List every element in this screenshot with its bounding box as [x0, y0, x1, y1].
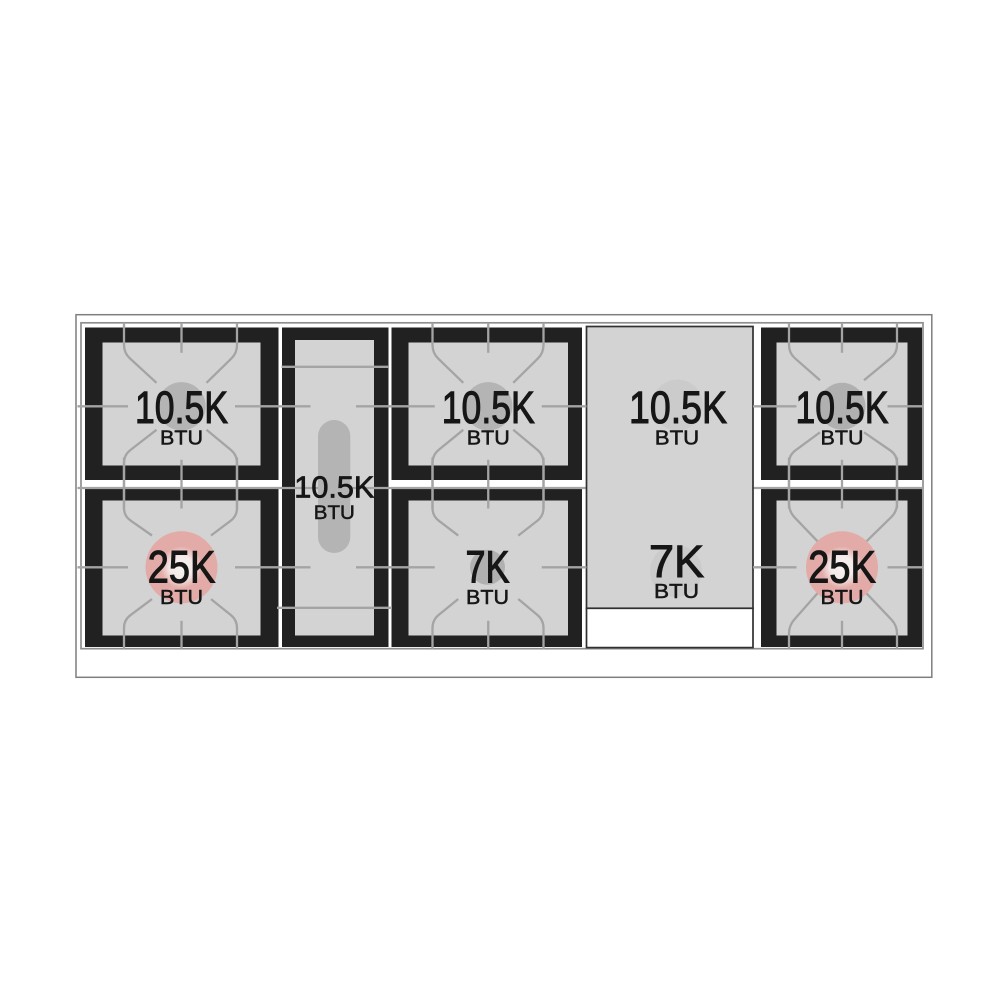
svg-text:BTU: BTU — [467, 428, 510, 450]
svg-text:10.5K: 10.5K — [294, 470, 374, 505]
svg-text:BTU: BTU — [654, 581, 699, 603]
svg-text:BTU: BTU — [314, 503, 355, 524]
svg-text:10.5K: 10.5K — [629, 382, 727, 433]
svg-text:BTU: BTU — [160, 587, 203, 609]
svg-text:7K: 7K — [649, 536, 704, 587]
svg-text:10.5K: 10.5K — [796, 382, 889, 433]
svg-text:BTU: BTU — [466, 587, 509, 609]
svg-text:BTU: BTU — [821, 428, 864, 450]
svg-text:10.5K: 10.5K — [135, 382, 228, 433]
svg-text:10.5K: 10.5K — [442, 382, 535, 433]
svg-text:25K: 25K — [148, 542, 216, 593]
svg-text:BTU: BTU — [160, 428, 203, 450]
svg-text:25K: 25K — [808, 542, 876, 593]
svg-text:BTU: BTU — [821, 587, 864, 609]
svg-text:BTU: BTU — [655, 428, 700, 450]
svg-text:7K: 7K — [466, 542, 510, 593]
